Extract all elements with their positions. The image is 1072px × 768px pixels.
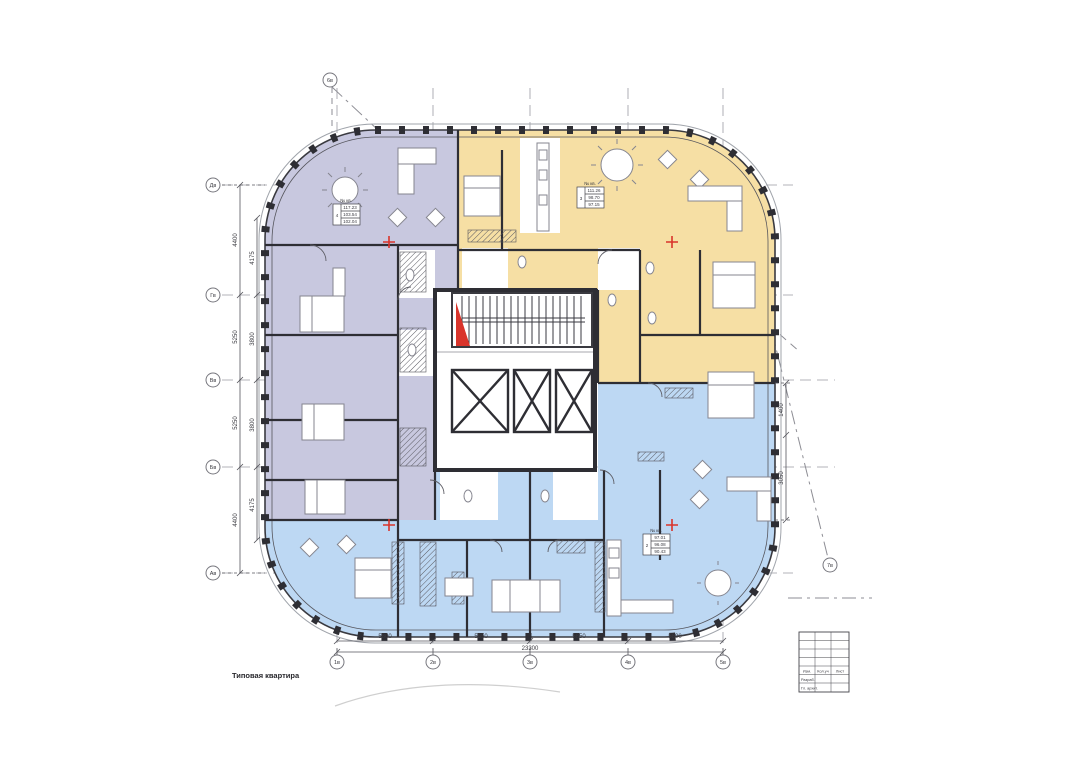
svg-text:5в: 5в	[720, 660, 726, 666]
svg-text:Бв: Бв	[210, 465, 217, 471]
svg-text:5850: 5850	[474, 634, 488, 640]
svg-text:№ кв.: № кв.	[650, 528, 662, 533]
drawing-page: Дв Гв Вв Бв Ав 1в 2в 3в 4в 5в 6в 7в	[0, 0, 1072, 768]
svg-text:102.04: 102.04	[343, 219, 357, 224]
svg-text:2в: 2в	[430, 660, 436, 666]
svg-text:Вв: Вв	[210, 378, 217, 384]
svg-text:Разраб.: Разраб.	[801, 678, 815, 682]
svg-text:4400: 4400	[233, 233, 239, 247]
plan-caption: Типовая квартира	[232, 671, 300, 680]
svg-text:№ кв.: № кв.	[584, 181, 596, 186]
svg-text:5250: 5250	[233, 330, 239, 344]
floor-plan: Дв Гв Вв Бв Ав 1в 2в 3в 4в 5в 6в 7в	[0, 0, 1072, 768]
svg-text:3в: 3в	[527, 660, 533, 666]
svg-text:96.08: 96.08	[654, 542, 666, 547]
svg-text:23300: 23300	[522, 646, 539, 652]
svg-text:5250: 5250	[233, 416, 239, 430]
svg-text:4в: 4в	[625, 660, 631, 666]
svg-text:1в: 1в	[334, 660, 340, 666]
building-core	[435, 290, 595, 470]
svg-text:111.26: 111.26	[587, 188, 601, 193]
svg-text:5850: 5850	[572, 634, 586, 640]
svg-text:4400: 4400	[233, 513, 239, 527]
svg-text:3800: 3800	[250, 418, 256, 432]
svg-text:117.23: 117.23	[343, 205, 357, 210]
svg-text:97.01: 97.01	[654, 535, 666, 540]
svg-text:Гл. архит.: Гл. архит.	[801, 687, 818, 691]
zone-purple	[265, 130, 458, 520]
svg-text:103.54: 103.54	[343, 212, 357, 217]
svg-text:Кол.уч: Кол.уч	[817, 670, 828, 674]
title-block: Изм. Кол.уч Лист Разраб. Гл. архит.	[799, 632, 849, 692]
svg-text:90.43: 90.43	[654, 549, 666, 554]
svg-text:Гв: Гв	[210, 293, 216, 299]
svg-text:5800: 5800	[378, 634, 392, 640]
svg-text:Дв: Дв	[210, 183, 217, 189]
page-edge-arc	[335, 685, 560, 706]
svg-text:4175: 4175	[250, 251, 256, 265]
svg-text:6в: 6в	[327, 78, 333, 84]
svg-text:7в: 7в	[827, 563, 833, 569]
svg-text:3050: 3050	[779, 471, 785, 485]
svg-text:№ кв.: № кв.	[340, 198, 352, 203]
svg-text:4175: 4175	[250, 498, 256, 512]
svg-text:98.70: 98.70	[588, 195, 600, 200]
svg-text:Ав: Ав	[210, 571, 217, 577]
svg-text:Лист: Лист	[836, 670, 845, 674]
svg-text:3800: 3800	[250, 332, 256, 346]
svg-text:5800: 5800	[668, 634, 682, 640]
svg-text:1400: 1400	[779, 403, 785, 417]
svg-text:Изм.: Изм.	[803, 670, 811, 674]
svg-text:97.15: 97.15	[588, 202, 600, 207]
